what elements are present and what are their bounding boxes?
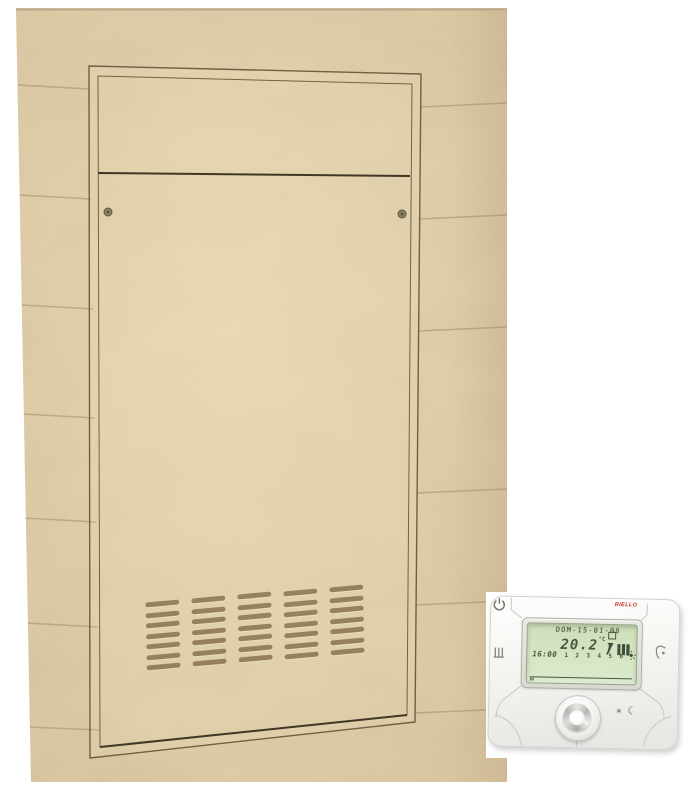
lcd-screen: DOM-15-01-06 20.2 °C 16: [526, 622, 638, 685]
scene: RIELLO [0, 0, 688, 789]
lcd-temp-unit: °C [599, 637, 606, 643]
schedule-histogram [530, 664, 632, 679]
thermostat-photo: RIELLO [486, 592, 688, 758]
hot-water-button[interactable] [652, 643, 668, 661]
radiator-icon [493, 645, 504, 658]
lcd-bezel: DOM-15-01-06 20.2 °C 16: [521, 617, 643, 691]
day-number: 3 [584, 652, 592, 659]
moon-icon[interactable]: ☾ [627, 704, 637, 717]
auto-sun-icon [626, 650, 636, 661]
brand-logo: RIELLO [603, 602, 637, 609]
boiler-access-panel [89, 66, 421, 758]
day-number: 4 [595, 653, 603, 660]
screw-left [104, 208, 112, 216]
hot-water-tap-icon [654, 644, 667, 660]
lcd-time: 16:00 [532, 649, 557, 659]
lcd-date: DOM-15-01-06 [527, 625, 637, 635]
day-number: 1 [562, 652, 570, 659]
knob-center [569, 709, 585, 725]
panel-outer-frame [89, 66, 421, 758]
day-number: 6 [617, 653, 625, 660]
screw-right [398, 210, 406, 218]
hour-label: 24 [530, 677, 534, 681]
program-box-icon [608, 631, 618, 640]
day-number: 2 [573, 652, 581, 659]
knob-ring [563, 703, 592, 732]
heating-button[interactable] [490, 642, 506, 660]
day-number: 5 [606, 653, 614, 660]
sun-icon[interactable]: ☀ [615, 707, 623, 717]
thermostat-remote: RIELLO [487, 595, 680, 750]
